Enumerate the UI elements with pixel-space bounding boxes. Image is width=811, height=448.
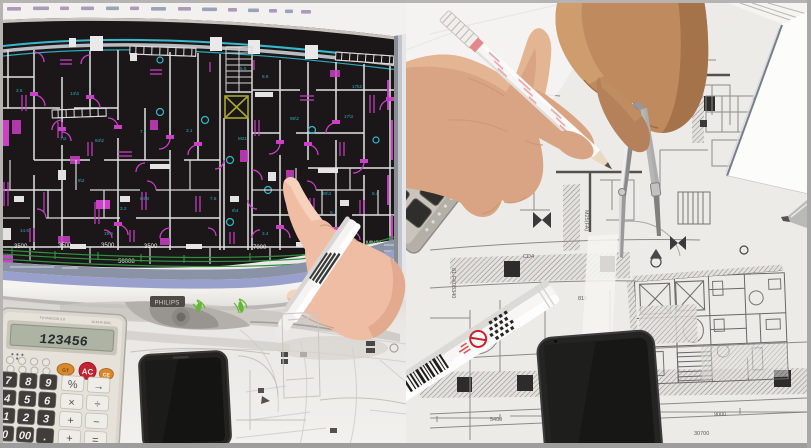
svg-text:30700: 30700 — [694, 431, 709, 437]
svg-text:GT: GT — [62, 368, 69, 374]
svg-text:→: → — [93, 380, 105, 393]
svg-text:00: 00 — [18, 430, 32, 443]
svg-text:÷: ÷ — [94, 398, 101, 410]
svg-text:3.4: 3.4 — [262, 231, 269, 236]
svg-text:3500: 3500 — [101, 243, 115, 249]
svg-text:17k2: 17k2 — [352, 84, 362, 89]
svg-text:4: 4 — [3, 393, 11, 405]
svg-text:9.1: 9.1 — [330, 210, 337, 215]
svg-text:AC: AC — [81, 367, 93, 377]
svg-text:95\3: 95\3 — [322, 191, 331, 196]
svg-text:+: + — [67, 415, 74, 427]
svg-text:M21: M21 — [238, 136, 247, 141]
svg-text:14\3: 14\3 — [70, 91, 79, 96]
svg-text:×: × — [68, 397, 75, 409]
svg-text:8\2: 8\2 — [78, 178, 85, 183]
svg-text:84\2: 84\2 — [95, 138, 104, 143]
svg-text:%: % — [67, 379, 78, 392]
svg-text:3500: 3500 — [187, 245, 201, 251]
svg-text:PHILIPS: PHILIPS — [154, 301, 179, 307]
svg-text:123456: 123456 — [38, 333, 89, 351]
svg-text:3: 3 — [43, 413, 50, 425]
svg-text:95\2: 95\2 — [290, 116, 299, 121]
svg-text:14.6: 14.6 — [20, 228, 29, 233]
svg-text:3500: 3500 — [14, 244, 28, 250]
svg-text:3500: 3500 — [58, 243, 72, 249]
svg-text:3500: 3500 — [144, 244, 158, 250]
svg-text:M25(FA): M25(FA) — [583, 210, 589, 231]
svg-text:3.6: 3.6 — [16, 88, 23, 93]
svg-text:81-FK03340: 81-FK03340 — [450, 268, 456, 298]
svg-text:9000: 9000 — [714, 412, 726, 418]
svg-text:−: − — [93, 416, 100, 428]
svg-text:5.5: 5.5 — [240, 66, 247, 71]
svg-text:84\8: 84\8 — [140, 196, 149, 201]
svg-text:8\4: 8\4 — [232, 208, 239, 213]
svg-text:8.8: 8.8 — [262, 74, 269, 79]
svg-text:7.4: 7.4 — [140, 129, 147, 134]
svg-text:1: 1 — [3, 411, 10, 423]
svg-text:7\2: 7\2 — [60, 136, 67, 141]
svg-text:7000: 7000 — [253, 245, 267, 251]
svg-text:3.2: 3.2 — [120, 206, 127, 211]
svg-text:CD4: CD4 — [523, 254, 534, 260]
svg-text:2: 2 — [22, 412, 30, 424]
svg-text:7.6: 7.6 — [210, 196, 217, 201]
svg-text:3.1: 3.1 — [186, 128, 193, 133]
svg-text:17\3: 17\3 — [344, 114, 353, 119]
